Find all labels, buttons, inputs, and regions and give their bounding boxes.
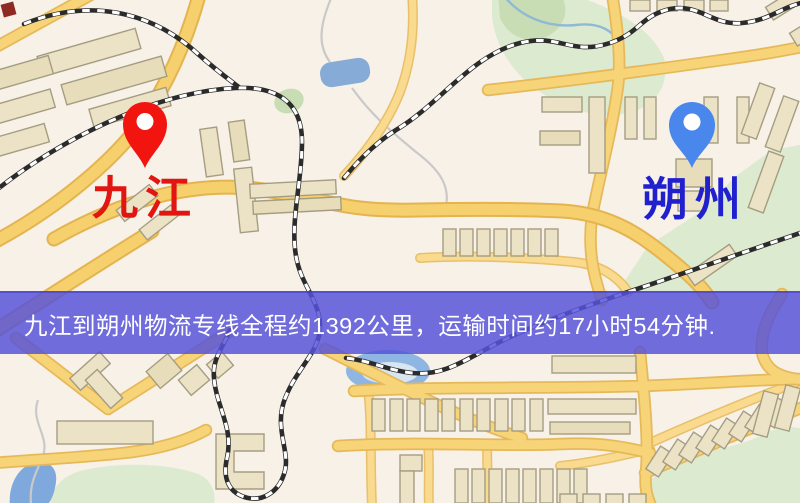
route-info-banner: 九江到朔州物流专线全程约1392公里，运输时间约17小时54分钟. — [0, 291, 800, 354]
route-info-text: 九江到朔州物流专线全程约1392公里，运输时间约17小时54分钟. — [24, 307, 716, 341]
destination-city-label: 朔州 — [642, 177, 748, 223]
map-canvas — [0, 0, 800, 503]
logistics-route-map: 九江 朔州 九江到朔州物流专线全程约1392公里，运输时间约17小时54分钟. — [0, 0, 800, 503]
origin-pin-hole — [137, 113, 154, 130]
destination-pin-hole — [684, 114, 701, 131]
origin-city-label: 九江 — [92, 176, 198, 222]
